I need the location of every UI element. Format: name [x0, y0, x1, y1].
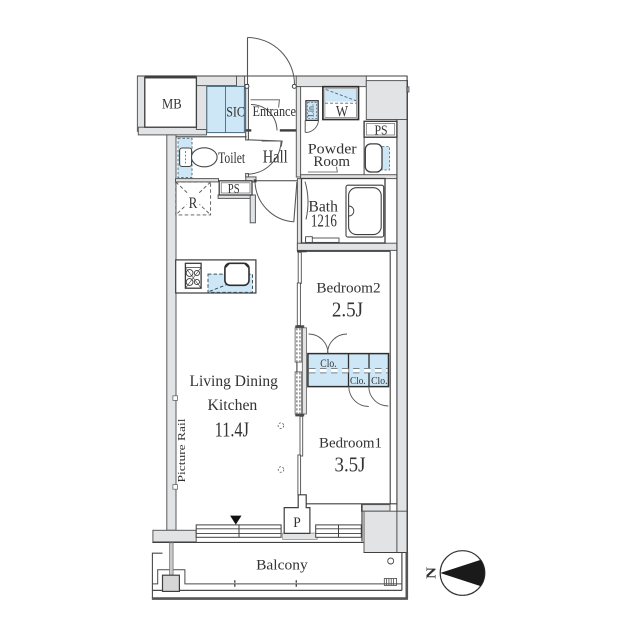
svg-text:Hall: Hall — [263, 147, 288, 167]
svg-text:Balcony: Balcony — [256, 558, 308, 574]
svg-text:PS: PS — [374, 123, 387, 138]
svg-text:Kitchen: Kitchen — [208, 397, 258, 414]
svg-text:Clo.: Clo. — [350, 375, 366, 387]
svg-text:Clo.: Clo. — [320, 358, 336, 370]
svg-text:11.4J: 11.4J — [215, 417, 249, 441]
svg-text:PS: PS — [228, 181, 240, 196]
svg-text:Bedroom1: Bedroom1 — [319, 436, 382, 452]
svg-text:Toilet: Toilet — [218, 150, 246, 167]
svg-text:Lin.: Lin. — [307, 104, 316, 117]
svg-text:1216: 1216 — [311, 211, 337, 231]
svg-text:3.5J: 3.5J — [335, 453, 366, 477]
svg-text:Clo.: Clo. — [371, 375, 388, 387]
svg-text:MB: MB — [162, 96, 182, 112]
svg-text:N: N — [425, 567, 440, 579]
svg-text:Living Dining: Living Dining — [190, 373, 278, 390]
svg-text:R: R — [189, 195, 198, 212]
svg-text:SIC: SIC — [226, 104, 245, 120]
svg-text:P: P — [293, 515, 301, 531]
svg-text:Bedroom2: Bedroom2 — [316, 281, 380, 297]
svg-text:W: W — [336, 104, 349, 121]
svg-text:Entrance: Entrance — [253, 104, 297, 120]
svg-text:Room: Room — [313, 154, 350, 170]
svg-text:Picture Rail: Picture Rail — [177, 418, 188, 482]
svg-text:2.5J: 2.5J — [332, 297, 363, 321]
